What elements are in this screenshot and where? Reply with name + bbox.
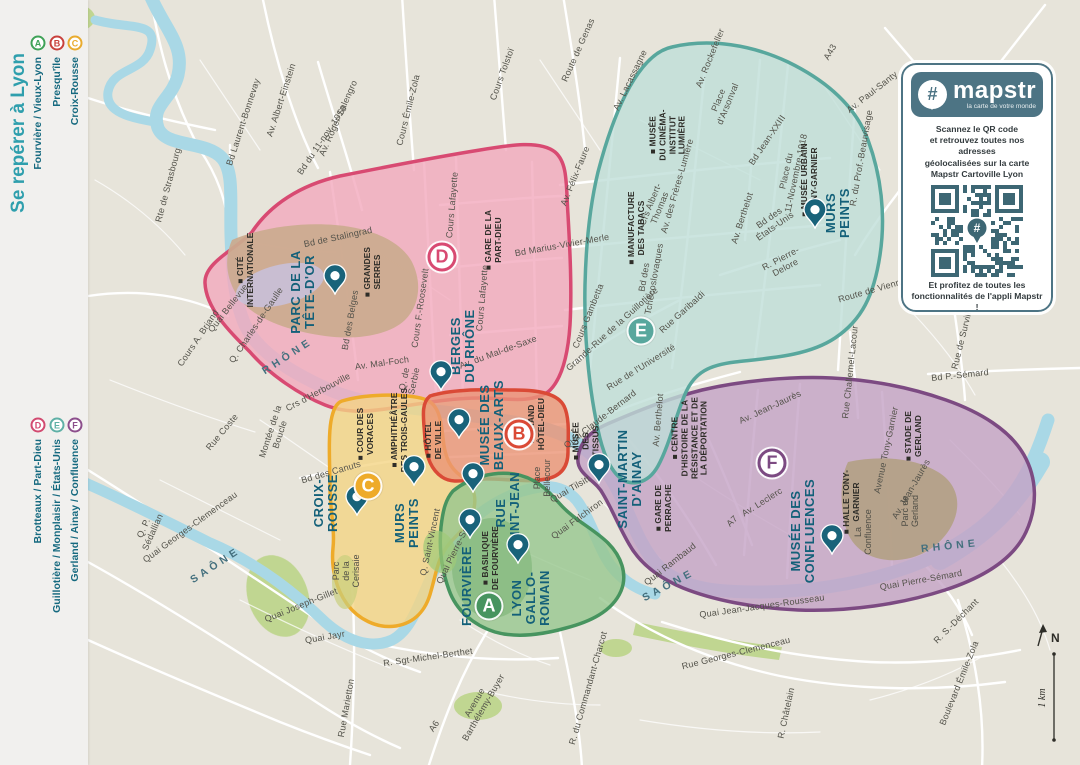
street-label: A6 [427, 718, 442, 733]
poi-label: ■ STADE DE GERLAND [904, 411, 924, 461]
poi-highlight-label: CROIX- ROUSSE [312, 474, 340, 532]
mapstr-logo: # mapstr la carte de votre monde [911, 72, 1043, 117]
legend-label-f: Gerland / Ainay / Confluence [68, 439, 82, 654]
poi-highlight-label: MURS PEINTS [824, 188, 852, 238]
street-label: Bd du 11-nov.-1918 [295, 103, 349, 176]
legend-sidebar: Se repérer à Lyon AFourvière / Vieux-Lyo… [0, 0, 88, 765]
street-label: Place d'Arsonval [705, 78, 740, 126]
poi-label: ■ MUSÉE DU CINÉMA- INSTITUT LUMIÈRE [648, 109, 687, 160]
poi-pin-icon[interactable] [429, 360, 453, 396]
street-label: R. Sgt-Michel-Berthet [383, 646, 474, 669]
street-label: Cours A. Briand [175, 308, 220, 368]
place-label: La Confluence [853, 509, 873, 555]
street-label: Avenue Tony-Garnier [872, 406, 900, 495]
street-label: Rue Challemel-Lacour [840, 325, 860, 419]
zone-badge-c[interactable]: C [354, 472, 383, 501]
mapstr-brand-name: mapstr [953, 80, 1036, 102]
cartoville-lyon-map-page: N 1 km Rte de StrasbourgBd Laurent-Bonne… [0, 0, 1080, 765]
poi-label: ■ MANUFACTURE DES TABACS [627, 191, 647, 264]
poi-pin-icon[interactable] [447, 408, 471, 444]
svg-text:#: # [974, 221, 981, 235]
poi-pin-icon[interactable] [323, 264, 347, 300]
zone-badge-b[interactable]: B [505, 420, 534, 449]
street-label: Rue de l'Université [605, 342, 677, 392]
poi-highlight-label: LYON GALLO- ROMAIN [510, 570, 552, 626]
poi-pin-icon[interactable] [458, 508, 482, 544]
street-label: Av. Berthelot [651, 393, 666, 447]
poi-pin-icon[interactable] [803, 198, 827, 234]
street-label: Montée de la Boucle [257, 404, 293, 462]
poi-pin-icon[interactable] [820, 524, 844, 560]
street-label: Q. Saint-Vincent [418, 507, 442, 576]
legend-label-c: Croix-Rousse [68, 57, 82, 257]
street-label: Av. Jean-Jaurès [737, 388, 802, 426]
street-label: Rue Garibaldi [657, 289, 707, 335]
street-label: Av. Albert-Einstein [264, 62, 297, 138]
street-label: Quai Joseph-Gillet [263, 586, 339, 624]
street-label: Avenue Barthélemy-Buyer [451, 667, 506, 742]
street-label: Rue Coste [204, 412, 240, 452]
street-label: Av. Félix-Faure [558, 145, 591, 207]
legend-label-e: Guillotière / Monplaisir / États-Unis [50, 439, 64, 654]
street-label: Quai Tilsitt [548, 474, 592, 505]
zone-badge-f[interactable]: F [758, 449, 787, 478]
street-label: Boulevard Émile-Zola [937, 639, 980, 726]
zone-badge-a[interactable]: A [475, 592, 504, 621]
street-label: Bd de Stalingrad [303, 225, 373, 249]
street-label: R. Pierre- Delore [760, 245, 805, 282]
street-label: R. Châtelain [776, 687, 797, 740]
qr-instructions: Scannez le QR code et retrouvez toutes n… [911, 124, 1043, 180]
street-label: Cours Tolstoï [488, 46, 516, 101]
street-label: Route de Genas [559, 17, 596, 84]
mapstr-footer-text: Et profitez de toutes les fonctionnalité… [911, 280, 1043, 314]
mapstr-wordmark: mapstr la carte de votre monde [953, 80, 1036, 110]
mapstr-tagline: la carte de votre monde [967, 103, 1036, 110]
street-label: Bd Laurent-Bonnevay [224, 77, 262, 167]
street-label: Av. Leclerc [740, 486, 784, 519]
street-label: Bd P.-Sémard [931, 367, 990, 383]
river-label: RHÔNE [261, 336, 316, 377]
street-label: Cours Émile-Zola [394, 74, 421, 147]
street-label: A7 [724, 513, 739, 528]
legend-badge-e: E [50, 418, 65, 433]
legend-label-a: Fourvière / Vieux-Lyon [31, 57, 45, 257]
street-label: Quai Jean-Jacques-Rousseau [699, 592, 825, 620]
street-label: Rte de Strasbourg [153, 147, 183, 223]
poi-pin-icon[interactable] [587, 453, 611, 489]
legend-badge-a: A [31, 36, 46, 51]
street-label: Bd Jean-XXIII [747, 113, 788, 167]
legend-label-d: Brotteaux / Part-Dieu [31, 439, 45, 654]
legend-badge-b: B [50, 36, 65, 51]
street-label: Cours Lafayette [444, 171, 460, 238]
poi-label: ■ GARE DE PERRACHE [654, 484, 674, 532]
street-label: Cours F.-Roosevelt [409, 268, 430, 349]
street-label: R. S.-Déchant [932, 597, 981, 646]
street-label: Av. Lacassagne [611, 48, 649, 112]
qr-code: # [931, 185, 1023, 277]
street-label: Quai Jayr [304, 629, 345, 646]
legend-label-b: Presqu'île [50, 57, 64, 257]
poi-label: ■ CITÉ INTERNATIONALE [236, 233, 256, 308]
street-label: Rue Marietton [336, 678, 356, 738]
zone-badge-e[interactable]: E [627, 317, 656, 346]
mapstr-hash-pin-icon: # [918, 80, 947, 109]
poi-label: ■ COUR DES VORACES [356, 408, 376, 461]
legend-badge-f: F [68, 418, 83, 433]
place-label: Parc de Gerland [900, 495, 920, 527]
poi-highlight-label: BERGES DU RHÔNE [449, 309, 477, 382]
street-label: Rue de Surville [949, 306, 974, 371]
poi-label: ■ GARE DE LA PART-DIEU [484, 210, 504, 270]
legend-badge-d: D [31, 418, 46, 433]
street-label: Bd Marius-Vivier-Merle [514, 232, 610, 259]
street-label: R. du Commandant-Charcot [567, 630, 609, 746]
street-label: Route de Vienne [837, 276, 907, 305]
street-label: Av. Berthelot [729, 191, 755, 245]
poi-pin-icon[interactable] [402, 455, 426, 491]
poi-highlight-label: MURS PEINTS [393, 498, 421, 548]
street-label: Crs d'Herbouville [284, 371, 352, 414]
poi-highlight-label: MUSÉE DES CONFLUENCES [789, 479, 817, 583]
hash-glyph: # [927, 84, 937, 105]
poi-pin-icon[interactable] [461, 462, 485, 498]
poi-label: ■ HÔTEL DE VILLE [424, 421, 444, 460]
poi-label: ■ CENTRE D'HISTOIRE DE LA RÉSISTANCE ET … [670, 397, 709, 479]
poi-pin-icon[interactable] [506, 533, 530, 569]
place-label: Parc de la Cerisaie [331, 554, 361, 587]
street-label: Quai Pierre-Sémard [879, 568, 963, 592]
page-title: Se repérer à Lyon [8, 53, 30, 228]
street-label: Rue Georges-Clemenceau [681, 635, 792, 672]
street-label: A43 [821, 42, 838, 61]
legend-badge-c: C [68, 36, 83, 51]
poi-highlight-label: SAINT-MARTIN D'AINAY [616, 429, 644, 528]
zone-badge-d[interactable]: D [428, 243, 457, 272]
mapstr-card: # mapstr la carte de votre monde Scannez… [901, 63, 1053, 312]
street-label: Quai Fulchiron [549, 497, 605, 541]
place-label: Place Bellecour [532, 459, 552, 497]
river-label: SAÔNE [189, 545, 243, 586]
poi-highlight-label: MUSÉE DES BEAUX-ARTS [478, 380, 506, 470]
river-label: RHÔNE [921, 538, 980, 556]
street-label: Av. Paul-Santy [845, 69, 900, 115]
poi-label: ■ GRANDES SERRES [363, 247, 383, 297]
poi-highlight-label: PARC DE LA TÊTE-D'OR [289, 250, 317, 333]
poi-highlight-label: FOURVIÈRE [460, 546, 474, 626]
